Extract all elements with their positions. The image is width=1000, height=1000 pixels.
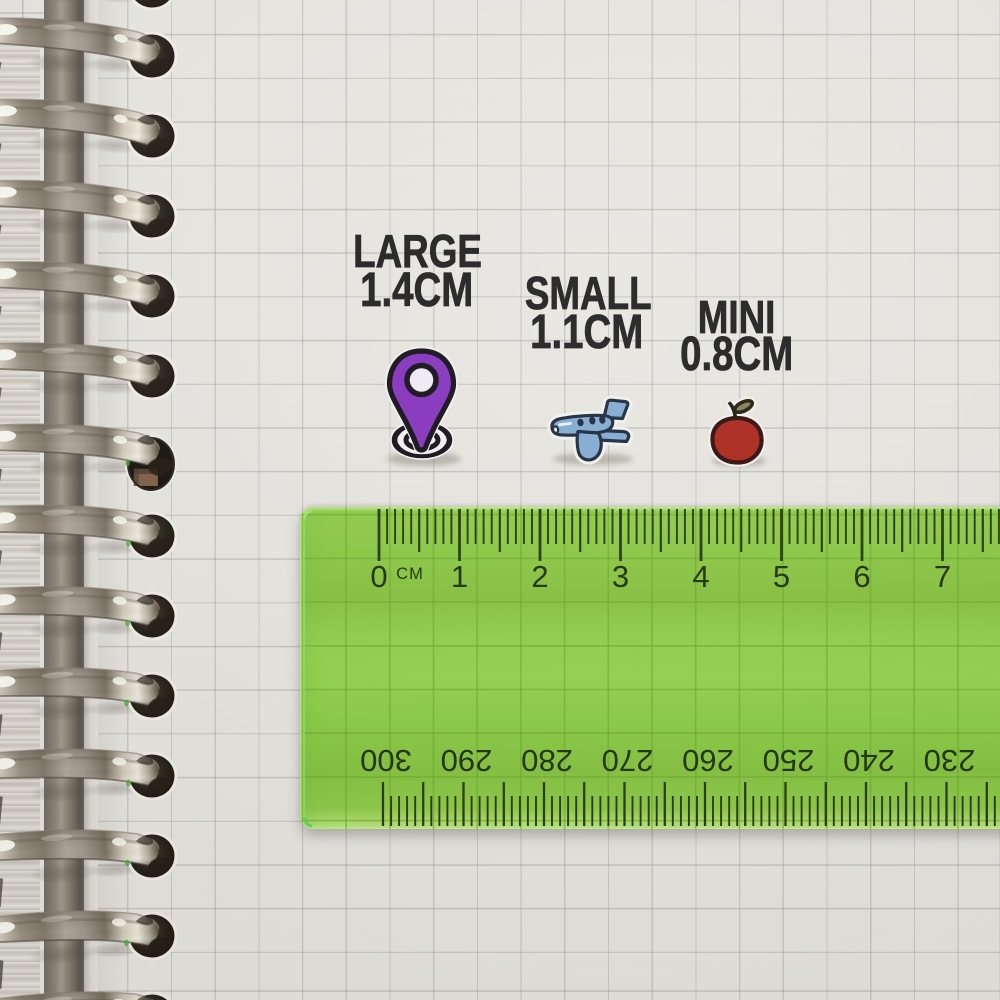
svg-text:230: 230 bbox=[924, 743, 976, 778]
svg-text:260: 260 bbox=[682, 743, 734, 778]
svg-text:5: 5 bbox=[773, 559, 790, 594]
svg-text:270: 270 bbox=[602, 743, 654, 778]
svg-text:6: 6 bbox=[853, 559, 870, 594]
svg-text:2: 2 bbox=[531, 559, 548, 594]
svg-text:280: 280 bbox=[521, 743, 573, 778]
svg-text:0: 0 bbox=[370, 559, 387, 594]
svg-text:4: 4 bbox=[692, 559, 709, 594]
svg-text:3: 3 bbox=[612, 559, 629, 594]
svg-text:240: 240 bbox=[843, 743, 895, 778]
svg-text:300: 300 bbox=[360, 743, 412, 778]
svg-text:250: 250 bbox=[763, 743, 815, 778]
svg-text:CM: CM bbox=[396, 565, 424, 583]
svg-text:1: 1 bbox=[451, 559, 468, 594]
svg-text:290: 290 bbox=[441, 743, 493, 778]
svg-text:7: 7 bbox=[934, 559, 951, 594]
